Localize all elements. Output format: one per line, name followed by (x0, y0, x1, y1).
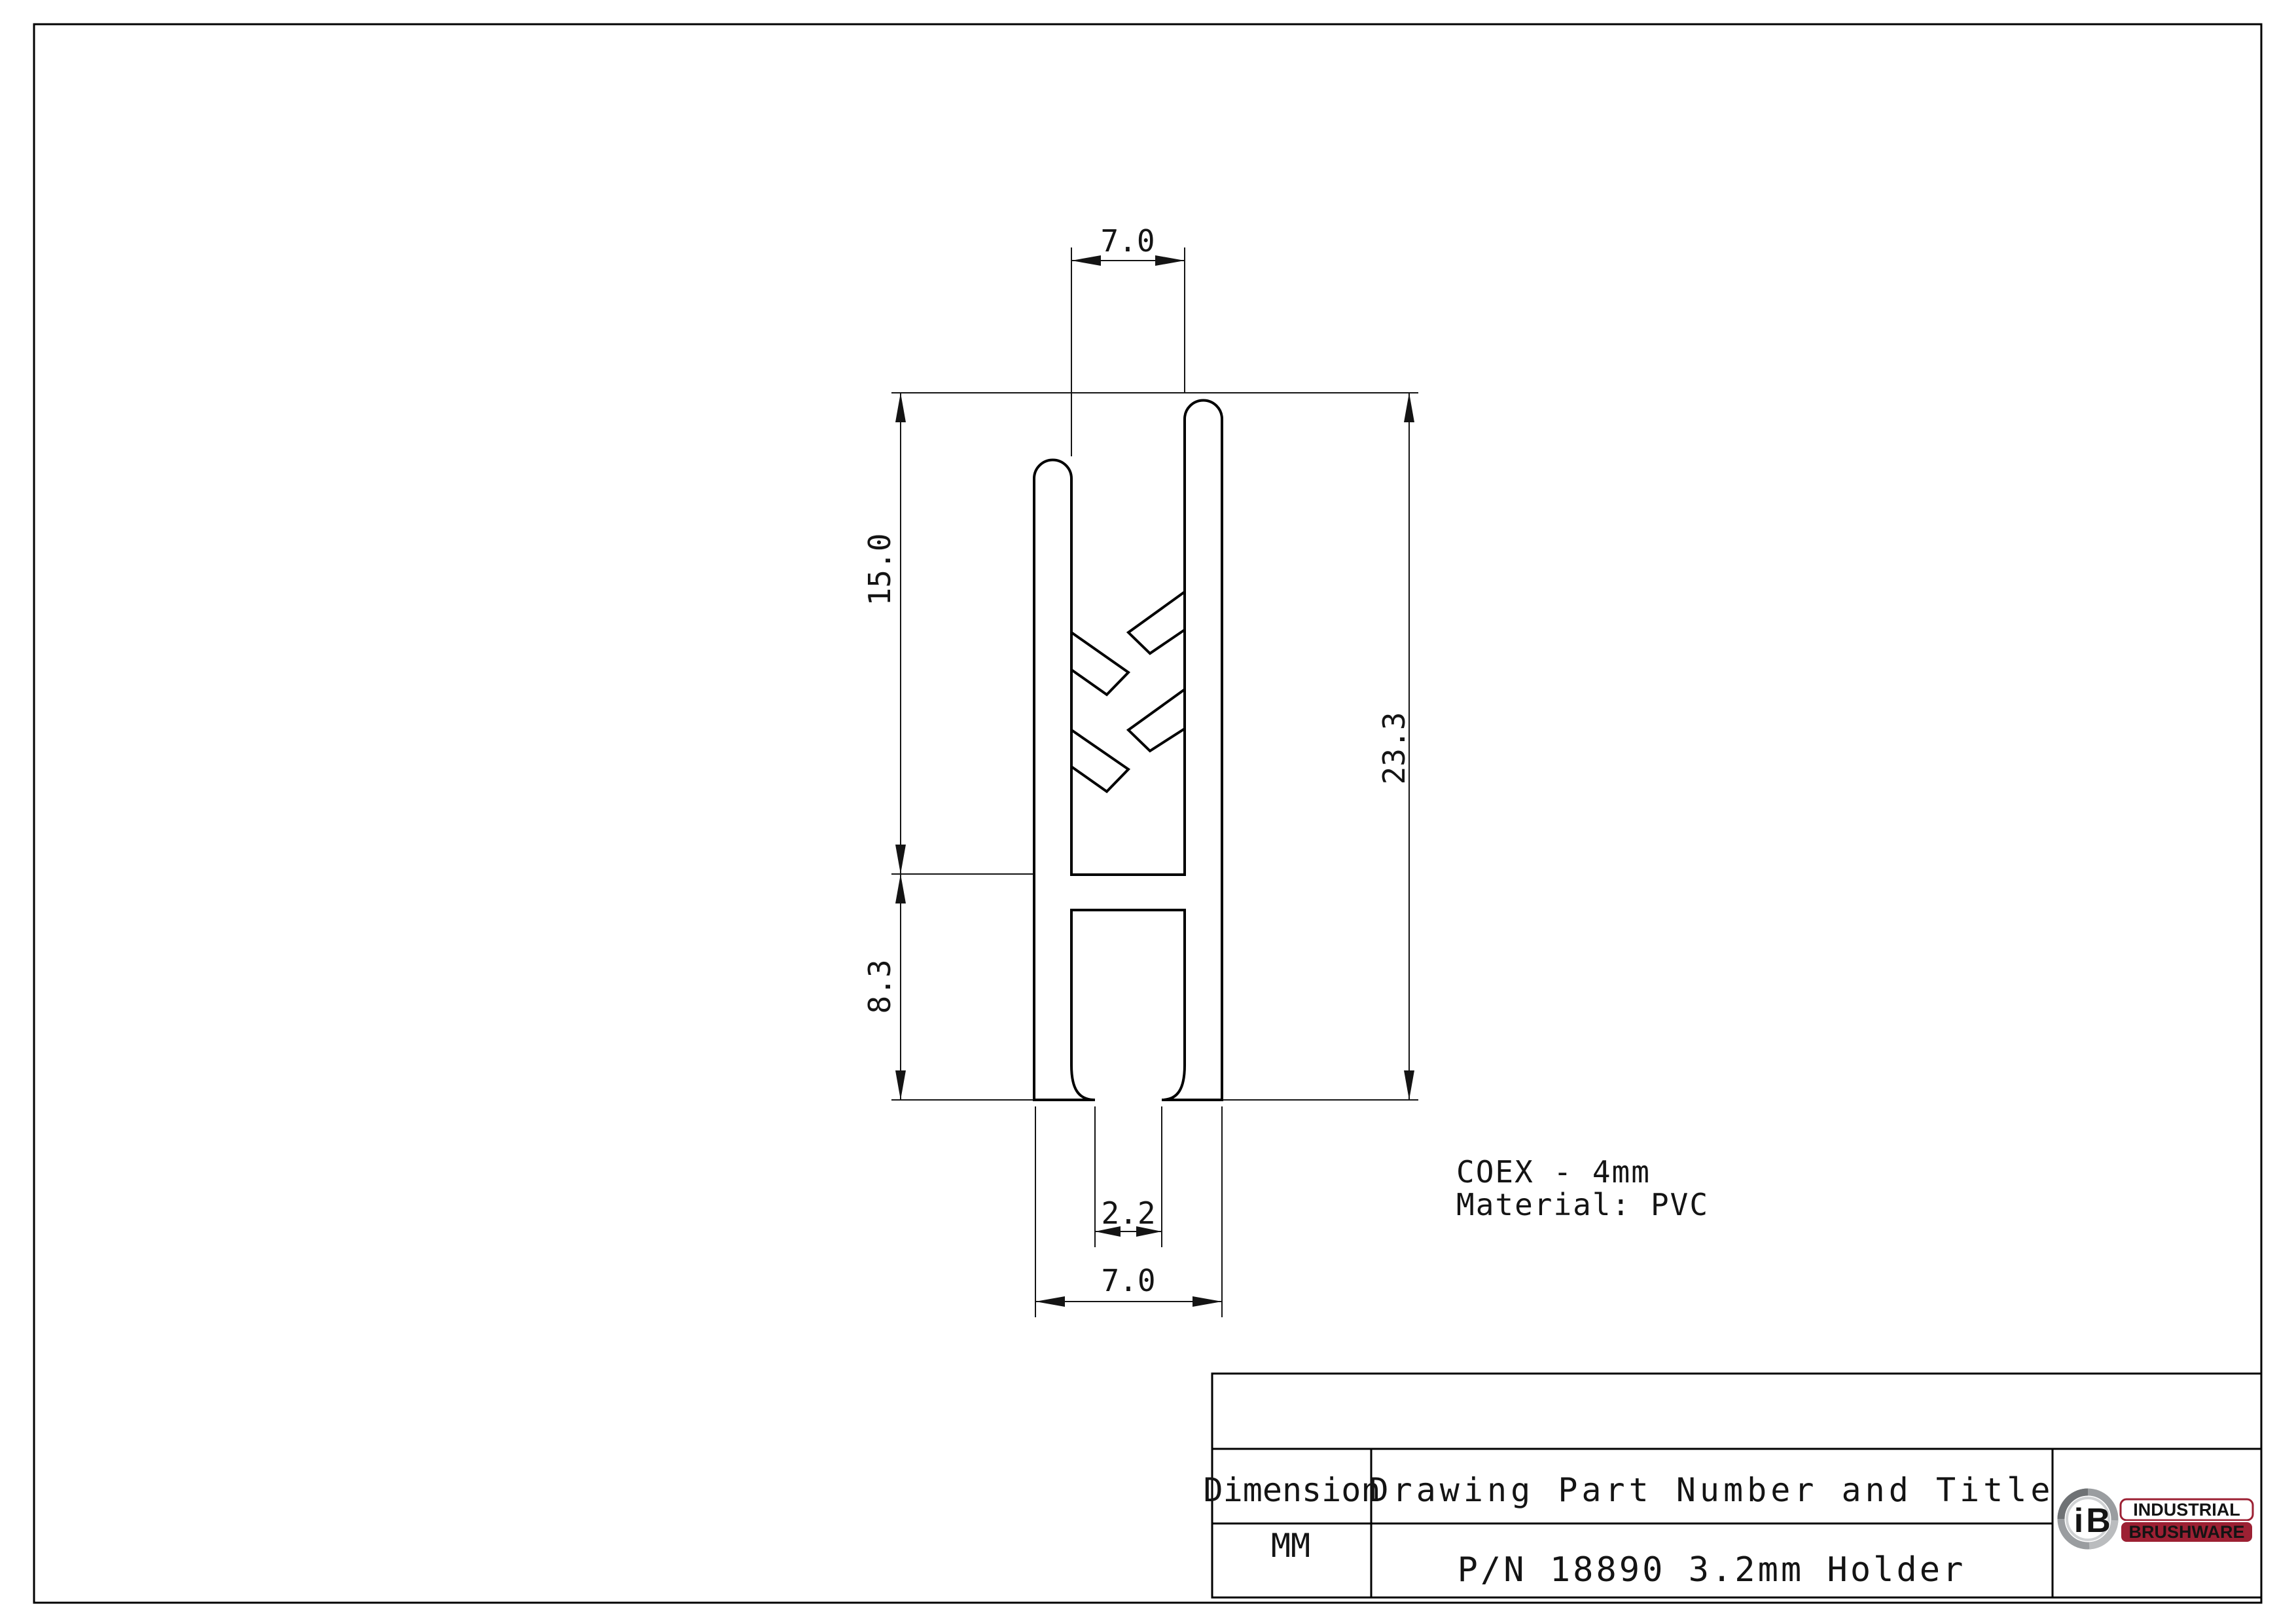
logo-monogram-b: B (2086, 1502, 2111, 1540)
title-block-dimension-unit: MM (1271, 1527, 1310, 1565)
title-block-title-header: Drawing Part Number and Title (1369, 1471, 2054, 1509)
title-block-dimension-header: Dimension (1204, 1471, 1381, 1509)
drawing-sheet: 7.0 15.0 8.3 23.3 2.2 (0, 0, 2296, 1623)
logo-word1: INDUSTRIAL (2133, 1500, 2240, 1520)
dim-label-slot-width: 2.2 (1101, 1195, 1155, 1231)
dim-label-upper-height: 15.0 (862, 534, 897, 606)
dim-label-lower-height: 8.3 (862, 959, 897, 1013)
logo-word2: BRUSHWARE (2128, 1522, 2244, 1542)
note-line1: COEX - 4mm (1456, 1154, 1651, 1190)
note-line2: Material: PVC (1456, 1187, 1709, 1222)
dim-label-total-height: 23.3 (1376, 712, 1412, 785)
dim-label-bottom-width: 7.0 (1101, 1263, 1155, 1298)
logo-monogram-i: i (2074, 1502, 2083, 1540)
dim-label-top-width: 7.0 (1100, 223, 1155, 259)
title-block-part-title: P/N 18890 3.2mm Holder (1458, 1550, 1966, 1590)
